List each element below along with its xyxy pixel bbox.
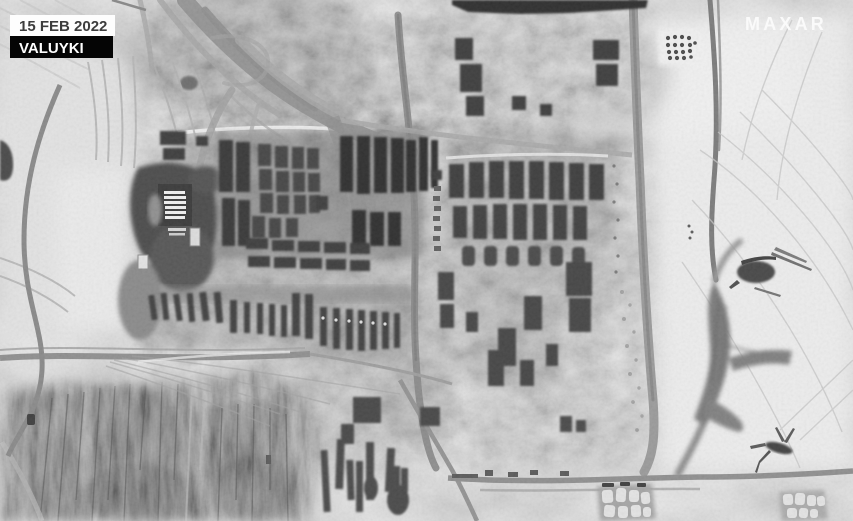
svg-text:VALUYKI: VALUYKI <box>19 40 84 57</box>
svg-text:MAXAR: MAXAR <box>745 14 827 34</box>
svg-text:15 FEB 2022: 15 FEB 2022 <box>19 18 107 35</box>
